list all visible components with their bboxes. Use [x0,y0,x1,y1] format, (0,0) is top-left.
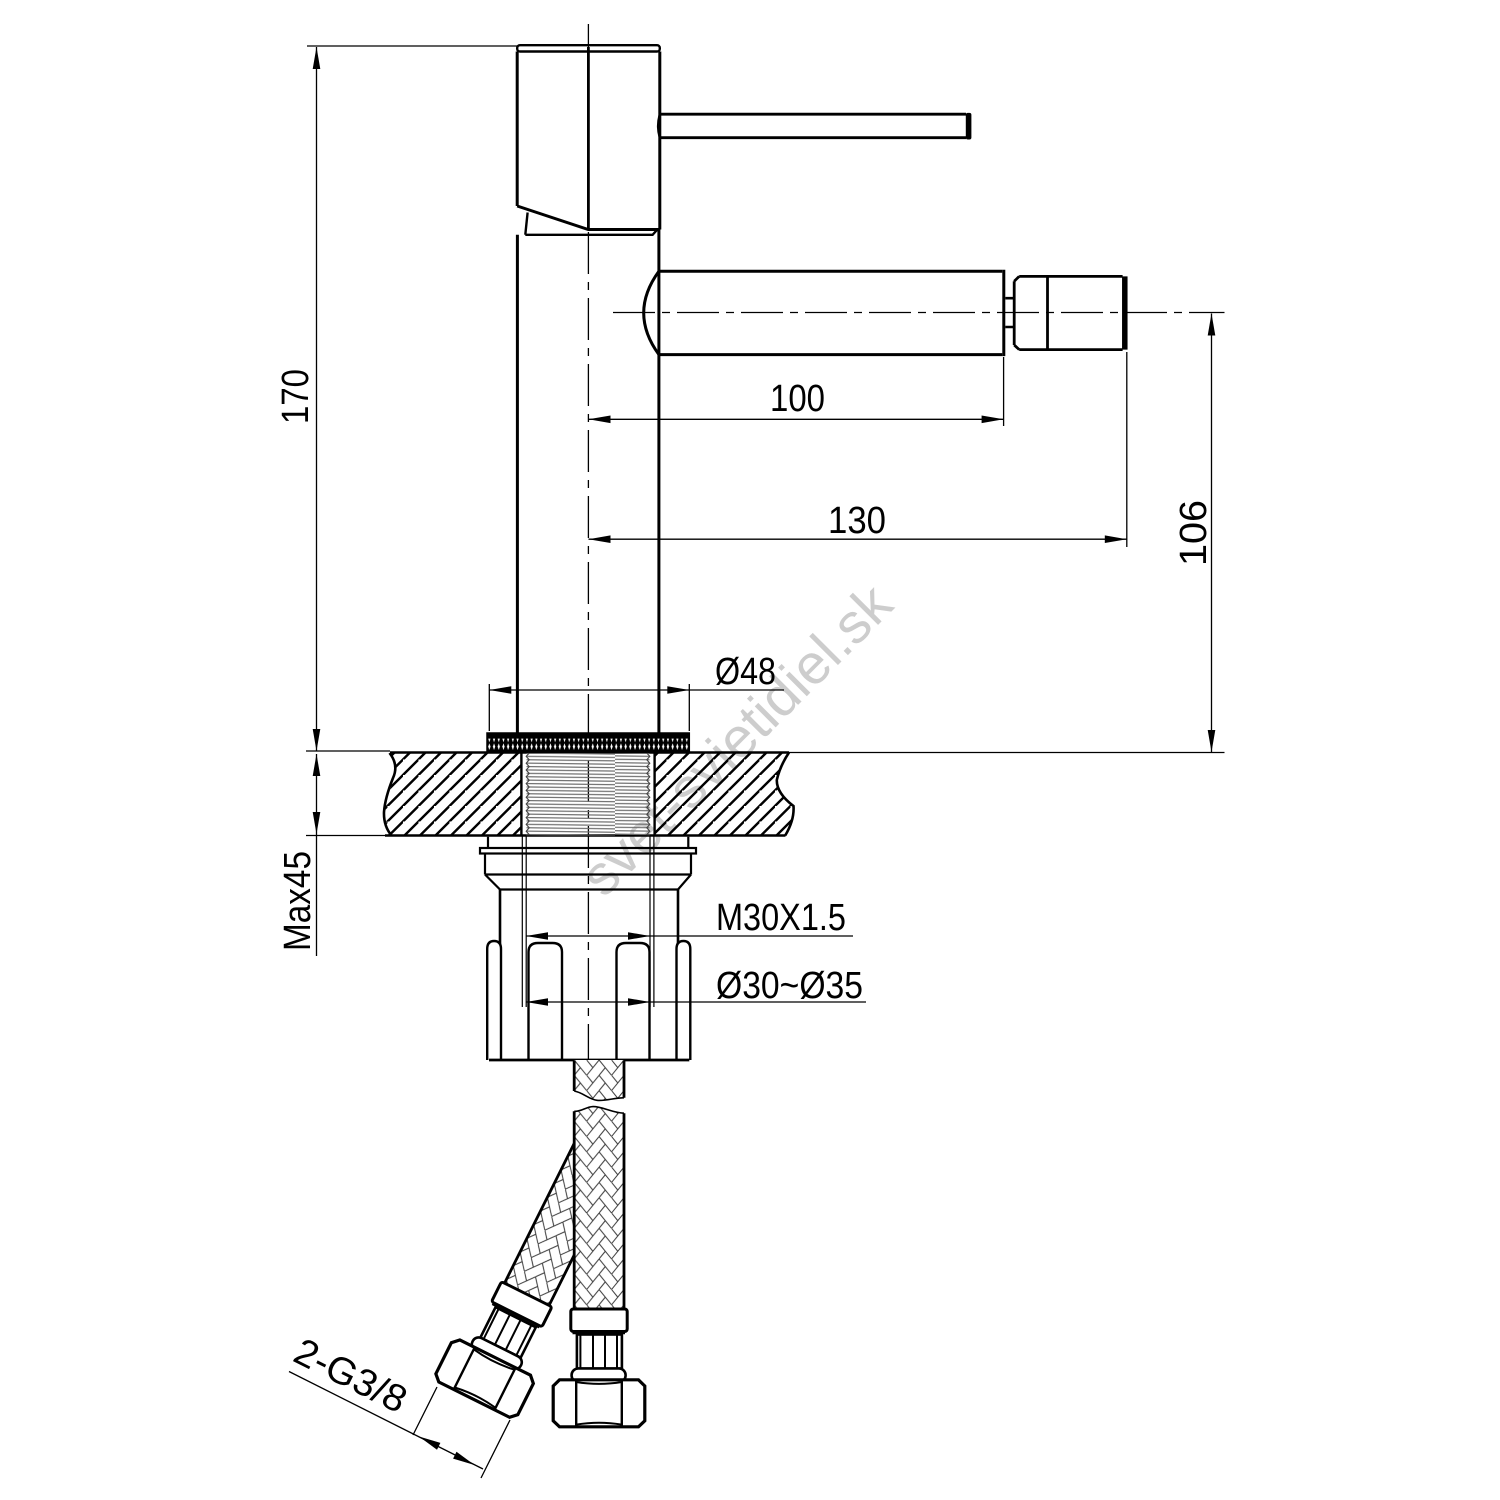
svg-text:Max45: Max45 [277,851,319,951]
svg-text:106: 106 [1173,500,1215,566]
svg-text:Ø48: Ø48 [715,651,776,693]
svg-text:100: 100 [770,378,825,420]
svg-text:130: 130 [828,500,886,542]
svg-text:M30X1.5: M30X1.5 [716,897,846,939]
svg-text:Ø30~Ø35: Ø30~Ø35 [716,965,863,1007]
svg-text:170: 170 [275,369,317,424]
